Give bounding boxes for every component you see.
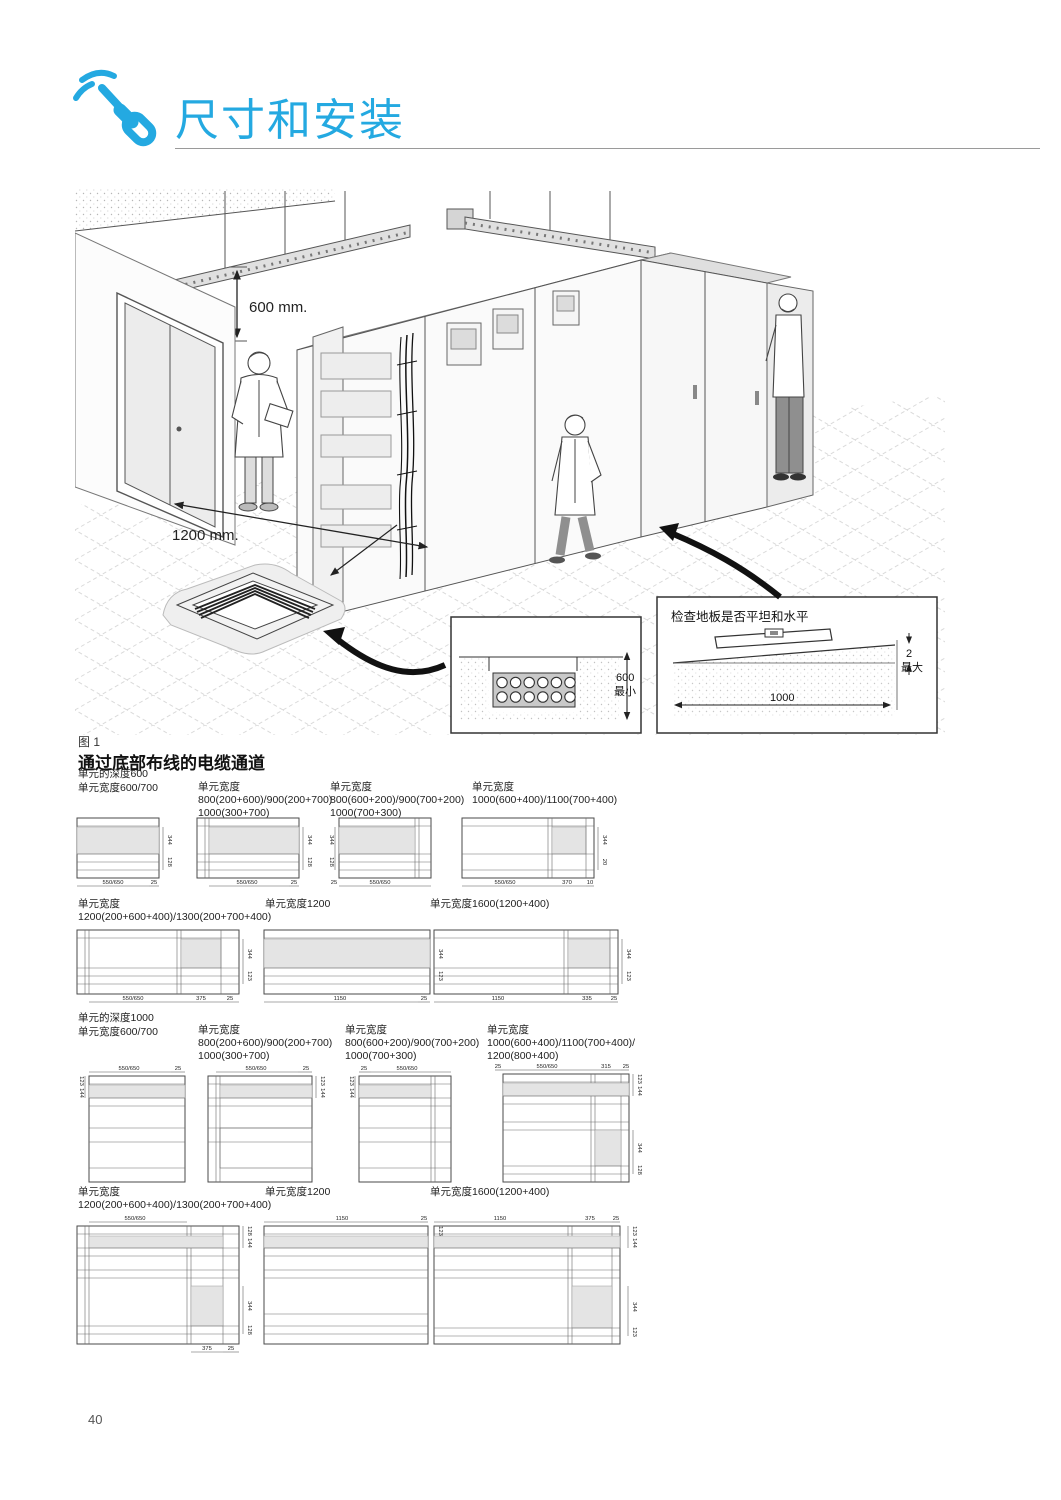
diagram-lines <box>77 818 163 886</box>
cable-entry-diagram-a2: 344 128 550/650 25 <box>195 814 315 894</box>
label-line: 800(600+200)/900(700+200) <box>330 794 464 807</box>
cable-entry-diagram-a4: 344 20 550/650 370 10 <box>460 814 610 894</box>
diagram-lines <box>197 818 303 886</box>
dim-label: 344 <box>636 1143 642 1153</box>
dim-label: 550/650 <box>370 880 391 886</box>
dim-label: 25 <box>291 880 297 886</box>
level-width-dim: 1000 <box>770 692 794 704</box>
cable-entry-diagram-b3: 344 123 1150 335 25 <box>432 926 642 1011</box>
dim-label: 128 <box>246 1325 252 1335</box>
dim-label: 550/650 <box>103 880 124 886</box>
installation-illustration: 600 mm. <box>75 185 945 735</box>
dim-label: 1150 <box>336 1216 348 1222</box>
diagram-lines <box>495 1070 633 1182</box>
dim-label: 335 <box>582 996 592 1002</box>
cable-entry-diagram-b2: 344 123 1150 25 <box>262 926 452 1011</box>
diagram-lines <box>85 1072 185 1182</box>
group3-item2-label: 单元宽度1600(1200+400) <box>430 1186 549 1199</box>
group2-item3-label: 单元宽度 1000(600+400)/1100(700+400)/ 1200(8… <box>487 1024 635 1063</box>
dim-label: 25 <box>331 880 337 886</box>
title-rule <box>175 148 1040 149</box>
level-gap-note: 最大 <box>901 660 923 674</box>
cable-entry-diagram-d1: 550/650 128 144 344 128 375 25 <box>75 1214 270 1356</box>
cable-entry-diagram-c4: 25 550/650 315 25 123 144 344 128 <box>487 1062 645 1190</box>
cable-entry-diagram-d2: 1150 25 123 144 <box>262 1214 452 1356</box>
dim-label: 128 <box>306 857 312 867</box>
diagram-lines <box>264 1222 434 1344</box>
trench-depth-dim: 600 <box>616 672 634 684</box>
dim-label: 1150 <box>494 1216 506 1222</box>
dim-label: 123 <box>246 971 252 981</box>
page-title: 尺寸和安装 <box>175 84 405 148</box>
dim-label: 128 <box>636 1165 642 1175</box>
dim-label: 25 <box>421 1216 427 1222</box>
label-line: 1000(300+700) <box>198 1050 332 1063</box>
label-line: 单元宽度 <box>472 781 617 794</box>
dim-label: 550/650 <box>495 880 516 886</box>
dim-label: 344 <box>306 835 312 845</box>
cable-entry-diagram-b1: 344 123 550/650 375 25 <box>75 926 260 1011</box>
dim-label: 25 <box>613 1216 619 1222</box>
cable-entry-diagram-c2: 550/650 25 123 144 <box>198 1064 326 1189</box>
door-handle <box>177 427 182 432</box>
group2-item1-label: 单元宽度 800(200+600)/900(200+700) 1000(300+… <box>198 1024 332 1063</box>
trench-callout: 600 最小 <box>451 617 641 733</box>
dim-label: 25 <box>361 1066 367 1072</box>
dim-label: 344 <box>625 949 631 959</box>
label-line: 单元宽度 <box>78 1186 271 1199</box>
group0-item3-label: 单元宽度 1000(600+400)/1100(700+400) <box>472 781 617 807</box>
dim-label: 344 <box>631 1302 637 1312</box>
dim-label: 25 <box>611 996 617 1002</box>
dim-label: 25 <box>227 996 233 1002</box>
figure-caption: 图 1 <box>78 733 100 750</box>
label-line: 单元宽度 <box>78 898 271 911</box>
dim-label: 25 <box>175 1066 181 1072</box>
dim-label: 550/650 <box>237 880 258 886</box>
dim-label: 123 <box>319 1076 325 1086</box>
dim-label: 10 <box>587 880 593 886</box>
cable-entry-diagram-a1: 344 128 550/650 25 <box>75 814 190 894</box>
page-number: 40 <box>88 1412 102 1427</box>
dim-label: 344 <box>601 835 607 845</box>
label-line: 单元宽度 <box>345 1024 479 1037</box>
dim-label: 344 <box>246 949 252 959</box>
label-line: 1000(600+400)/1100(700+400)/ <box>487 1037 635 1050</box>
group2-item0-label: 单元宽度600/700 <box>78 1026 158 1039</box>
dim-label: 344 <box>246 1301 252 1311</box>
group0-item0-label: 单元宽度600/700 <box>78 782 158 795</box>
dim-label: 315 <box>601 1064 611 1070</box>
label-line: 800(600+200)/900(700+200) <box>345 1037 479 1050</box>
cable-entry-diagram-a3: 344 128 25 550/650 <box>325 814 440 894</box>
dim-label: 1150 <box>492 996 504 1002</box>
dim-label: 123 <box>78 1076 84 1086</box>
diagram-lines <box>208 1072 316 1182</box>
level-check-callout: 检查地板是否平坦和水平 2 最大 1000 <box>657 597 937 733</box>
label-line: 800(200+600)/900(200+700) <box>198 1037 332 1050</box>
dim-label: 20 <box>601 859 607 865</box>
dim-label: 144 <box>319 1088 325 1098</box>
cable-entry-diagram-c1: 550/650 25 123 144 <box>75 1064 193 1189</box>
dim-label: 550/650 <box>123 996 144 1002</box>
dim-1200mm: 1200 mm. <box>172 527 239 544</box>
dim-label: 550/650 <box>537 1064 558 1070</box>
trench-depth-note: 最小 <box>614 685 636 698</box>
dim-label: 25 <box>623 1064 629 1070</box>
diagram-lines <box>264 930 434 1002</box>
dim-label: 550/650 <box>246 1066 267 1072</box>
group1-item1-label: 单元宽度1200 <box>265 898 330 911</box>
cable-entry-diagram-d3: 1150 375 25 123 144 344 123 <box>432 1214 647 1356</box>
level-callout-title: 检查地板是否平坦和水平 <box>671 609 809 624</box>
label-line: 800(200+600)/900(200+700) <box>198 794 332 807</box>
group3-item1-label: 单元宽度1200 <box>265 1186 330 1199</box>
dim-label: 25 <box>151 880 157 886</box>
dim-label: 128 <box>166 857 172 867</box>
label-line: 单元宽度 <box>198 1024 332 1037</box>
dim-label: 144 <box>78 1088 84 1098</box>
dim-label: 344 <box>166 835 172 845</box>
dim-label: 123 <box>625 971 631 981</box>
dim-label: 123 <box>631 1226 637 1236</box>
dim-label: 25 <box>303 1066 309 1072</box>
diagram-lines <box>355 1072 451 1182</box>
dim-label: 375 <box>196 996 206 1002</box>
label-line: 1000(700+300) <box>345 1050 479 1063</box>
diagram-lines <box>462 818 598 886</box>
label-line: 单元宽度 <box>487 1024 635 1037</box>
group2-item2-label: 单元宽度 800(600+200)/900(700+200) 1000(700+… <box>345 1024 479 1063</box>
group0-depth-label: 单元的深度600 <box>78 768 148 781</box>
cable-entry-diagram-c3: 25 550/650 123 144 <box>345 1064 473 1189</box>
dim-600mm: 600 mm. <box>249 299 307 316</box>
dim-label: 344 <box>328 835 334 845</box>
label-line: 1200(200+600+400)/1300(200+700+400) <box>78 911 271 924</box>
dim-label: 123 <box>348 1076 354 1086</box>
dim-label: 25 <box>228 1346 234 1352</box>
dim-label: 375 <box>585 1216 595 1222</box>
dim-label: 123 <box>636 1074 642 1084</box>
dim-label: 128 <box>328 857 334 867</box>
dim-label: 25 <box>495 1064 501 1070</box>
label-line: 单元宽度 <box>330 781 464 794</box>
diagram-lines <box>434 1222 628 1344</box>
label-line: 1200(200+600+400)/1300(200+700+400) <box>78 1199 271 1212</box>
dim-label: 370 <box>562 880 572 886</box>
dim-label: 144 <box>636 1086 642 1096</box>
diagram-lines <box>77 930 243 1002</box>
dim-label: 550/650 <box>119 1066 140 1072</box>
manual-page: 尺寸和安装 <box>0 0 1061 1500</box>
label-line: 单元宽度 <box>198 781 332 794</box>
dim-label: 144 <box>246 1238 252 1248</box>
ceiling-clearance-dimension: 600 mm. <box>229 267 307 341</box>
diagram-lines <box>335 818 431 886</box>
level-gap-dim: 2 <box>906 648 912 660</box>
group3-item0-label: 单元宽度 1200(200+600+400)/1300(200+700+400) <box>78 1186 271 1212</box>
dim-label: 375 <box>202 1346 212 1352</box>
diagram-lines <box>434 930 622 1002</box>
group1-item2-label: 单元宽度1600(1200+400) <box>430 898 549 911</box>
dim-label: 1150 <box>334 996 346 1002</box>
screwdriver-icon <box>68 58 173 168</box>
dim-label: 25 <box>421 996 427 1002</box>
diagram-lines <box>77 1222 243 1352</box>
dim-label: 128 <box>246 1226 252 1236</box>
dim-label: 550/650 <box>397 1066 418 1072</box>
dim-label: 550/650 <box>125 1216 146 1222</box>
dim-label: 144 <box>348 1088 354 1098</box>
label-line: 1000(600+400)/1100(700+400) <box>472 794 617 807</box>
dim-label: 123 <box>631 1327 637 1337</box>
group2-depth-label: 单元的深度1000 <box>78 1012 154 1025</box>
dim-label: 144 <box>631 1238 637 1248</box>
group1-item0-label: 单元宽度 1200(200+600+400)/1300(200+700+400) <box>78 898 271 924</box>
